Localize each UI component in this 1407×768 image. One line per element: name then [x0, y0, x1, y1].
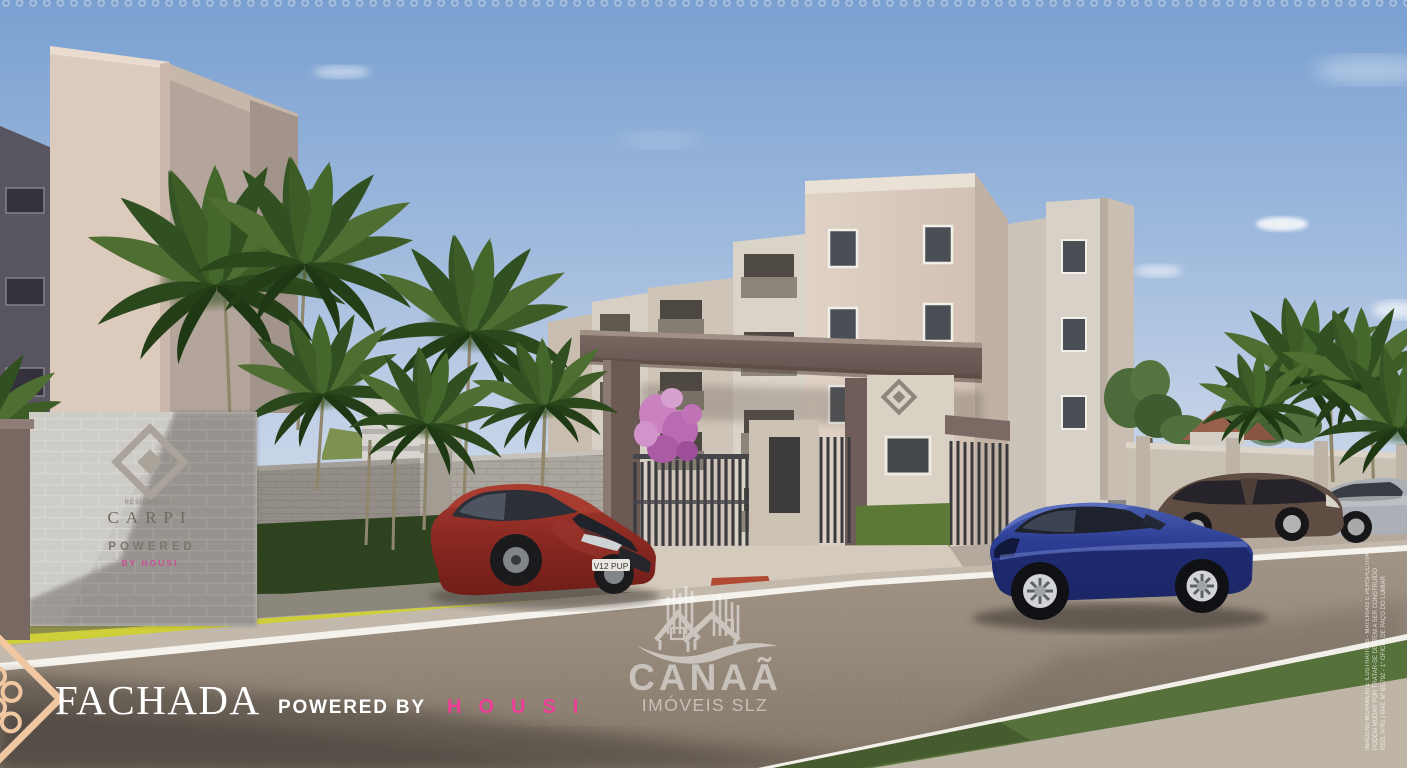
- svg-text:REG. N°R1 | MAT. N° 65.792 - 1: REG. N°R1 | MAT. N° 65.792 - 1° OFICIO D…: [1381, 575, 1387, 750]
- svg-text:RESIDENCIAL: RESIDENCIAL: [124, 500, 175, 506]
- svg-text:IMÓVEIS SLZ: IMÓVEIS SLZ: [642, 694, 768, 715]
- svg-text:IMAGENS MERAMENTE ILUSTRATIVAS: IMAGENS MERAMENTE ILUSTRATIVAS - MATERIA…: [1365, 549, 1371, 750]
- svg-text:V12 PUP: V12 PUP: [594, 561, 629, 571]
- svg-text:HOUSI: HOUSI: [447, 696, 595, 718]
- svg-text:PODEM MUDAR POR TRATAR-SE DE I: PODEM MUDAR POR TRATAR-SE DE ITEM A SER …: [1372, 568, 1379, 750]
- svg-text:POWERED BY: POWERED BY: [278, 697, 426, 718]
- svg-text:CARPI: CARPI: [107, 508, 192, 527]
- svg-text:FACHADA: FACHADA: [55, 677, 261, 723]
- svg-text:POWERED: POWERED: [108, 541, 195, 553]
- svg-text:CANAÃ: CANAÃ: [628, 656, 782, 698]
- svg-text:BY HOUSI: BY HOUSI: [122, 558, 179, 568]
